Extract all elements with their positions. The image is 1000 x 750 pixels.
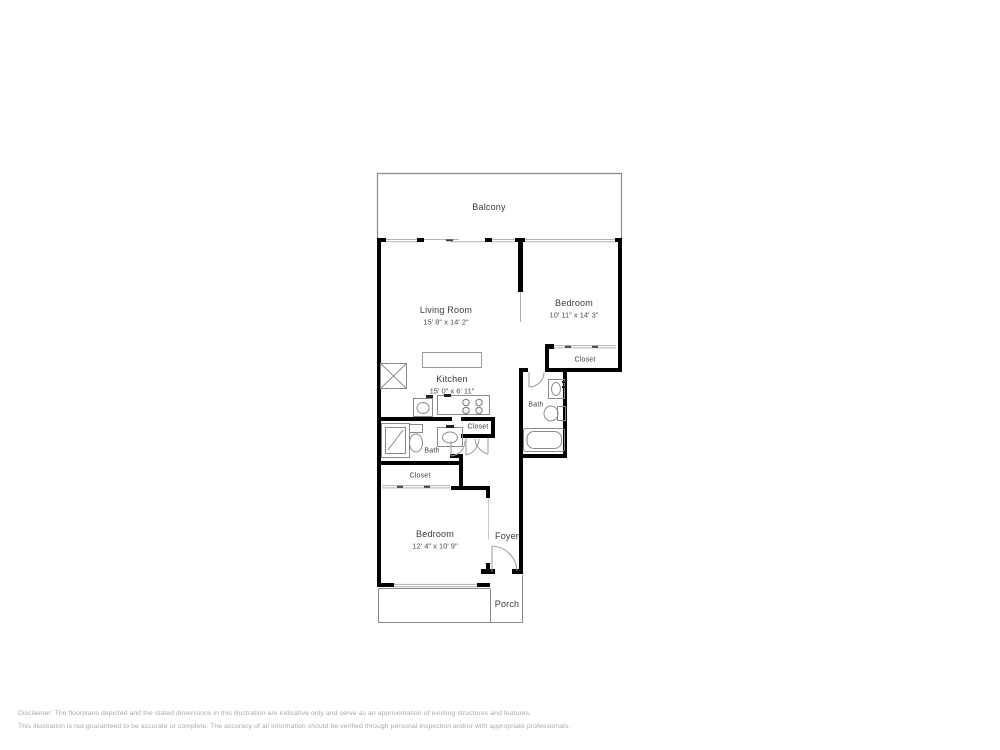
- room-dim-bedroom-right: 10' 11" x 14' 3": [550, 311, 599, 320]
- room-label-bath-right: Bath: [528, 402, 543, 409]
- disclaimer-line-1: Disclaimer: The floorplans depicted and …: [18, 708, 570, 721]
- room-label-closet-lower: Closet: [409, 473, 430, 480]
- floorplan-page: Balcony Living Room 15' 8" x 14' 2" Bedr…: [0, 0, 1000, 750]
- washer-dryer-icon: [381, 364, 407, 389]
- room-label-bedroom-right: Bedroom: [555, 298, 593, 308]
- bathtub-icon: [524, 429, 565, 452]
- stove-icon: [438, 394, 490, 415]
- room-label-kitchen: Kitchen: [436, 374, 467, 384]
- kitchen-sink-icon: [414, 395, 434, 417]
- room-label-closet-hall: Closet: [467, 424, 488, 431]
- room-label-living-room: Living Room: [420, 305, 472, 315]
- room-label-bath-left: Bath: [424, 448, 439, 455]
- shower-icon: [382, 424, 410, 458]
- toilet-icon-left: [410, 425, 423, 453]
- room-dim-kitchen: 15' 0" x 6' 11": [430, 387, 475, 396]
- room-label-foyer: Foyer: [495, 531, 519, 541]
- room-dim-living-room: 15' 8" x 14' 2": [423, 318, 468, 327]
- disclaimer-line-2: This illustration is not guaranteed to b…: [18, 721, 570, 734]
- bath-sink-icon-left: [438, 425, 463, 447]
- room-dim-bedroom-lower: 12' 4" x 10' 9": [412, 542, 457, 551]
- room-label-balcony: Balcony: [472, 202, 505, 212]
- disclaimer: Disclaimer: The floorplans depicted and …: [18, 708, 570, 733]
- room-label-porch: Porch: [495, 599, 520, 609]
- toilet-icon-right: [544, 406, 566, 421]
- room-label-closet-bedroom: Closet: [574, 357, 595, 364]
- kitchen-island: [423, 353, 482, 368]
- room-label-bedroom-lower: Bedroom: [416, 529, 454, 539]
- floorplan-drawing: [0, 0, 1000, 750]
